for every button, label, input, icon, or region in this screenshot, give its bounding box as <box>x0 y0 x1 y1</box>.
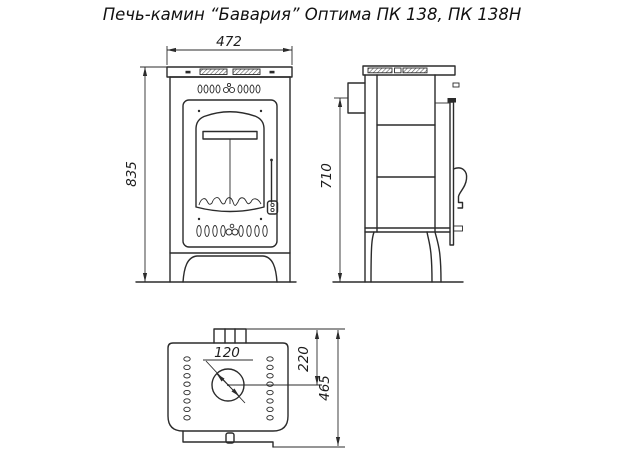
side-door-handle <box>454 168 467 208</box>
door-screw <box>198 218 200 220</box>
front-lower-holes <box>197 224 267 236</box>
glass-top-bar <box>203 132 257 140</box>
door-glass <box>196 112 264 212</box>
dim-472-label: 472 <box>216 34 242 50</box>
door-screw <box>260 218 262 220</box>
dim-465-label: 465 <box>317 375 333 401</box>
dim-front-width: 472 <box>167 34 292 65</box>
dim-710-label: 710 <box>319 163 335 189</box>
front-top-plate <box>167 67 292 77</box>
technical-drawing-page: Печь-камин “Бавария” Оптима ПК 138, ПК 1… <box>0 0 624 460</box>
door-handle <box>268 159 278 214</box>
top-hole-columns <box>184 357 273 420</box>
top-view: 120 220 465 <box>168 329 345 447</box>
fire-door <box>183 100 278 247</box>
air-vent-grille <box>233 69 260 75</box>
top-flue-stub <box>214 329 246 343</box>
air-vent-grille <box>368 68 392 73</box>
front-legs <box>183 256 277 282</box>
dim-flue-height: 710 <box>319 98 348 282</box>
side-legs <box>371 232 441 282</box>
side-door <box>448 98 467 245</box>
drawing-title: Печь-камин “Бавария” Оптима ПК 138, ПК 1… <box>103 5 522 24</box>
door-screw <box>260 110 262 112</box>
side-view: 710 <box>319 66 467 282</box>
dim-depth: 465 <box>317 330 338 446</box>
front-view: 472 835 <box>124 34 296 282</box>
ash-pan-pin <box>454 226 463 231</box>
dim-220-label: 220 <box>296 346 312 372</box>
top-hinge <box>448 98 457 103</box>
air-vent-grille <box>200 69 227 75</box>
side-flue-outlet <box>348 83 365 113</box>
dim-flue-offset: 220 <box>296 330 317 385</box>
dim-835-label: 835 <box>124 161 140 187</box>
top-flue-circle: 120 <box>203 345 253 403</box>
stove-drawing: Печь-камин “Бавария” Оптима ПК 138, ПК 1… <box>0 0 624 460</box>
front-upper-holes <box>198 83 260 93</box>
dim-120-label: 120 <box>214 345 240 361</box>
top-base-plate <box>183 431 273 447</box>
door-screw <box>198 110 200 112</box>
side-body <box>333 75 463 282</box>
door-latch <box>268 201 278 214</box>
hinge-pin <box>453 83 459 87</box>
air-vent-grille <box>403 68 427 73</box>
dim-front-height: 835 <box>124 67 168 282</box>
